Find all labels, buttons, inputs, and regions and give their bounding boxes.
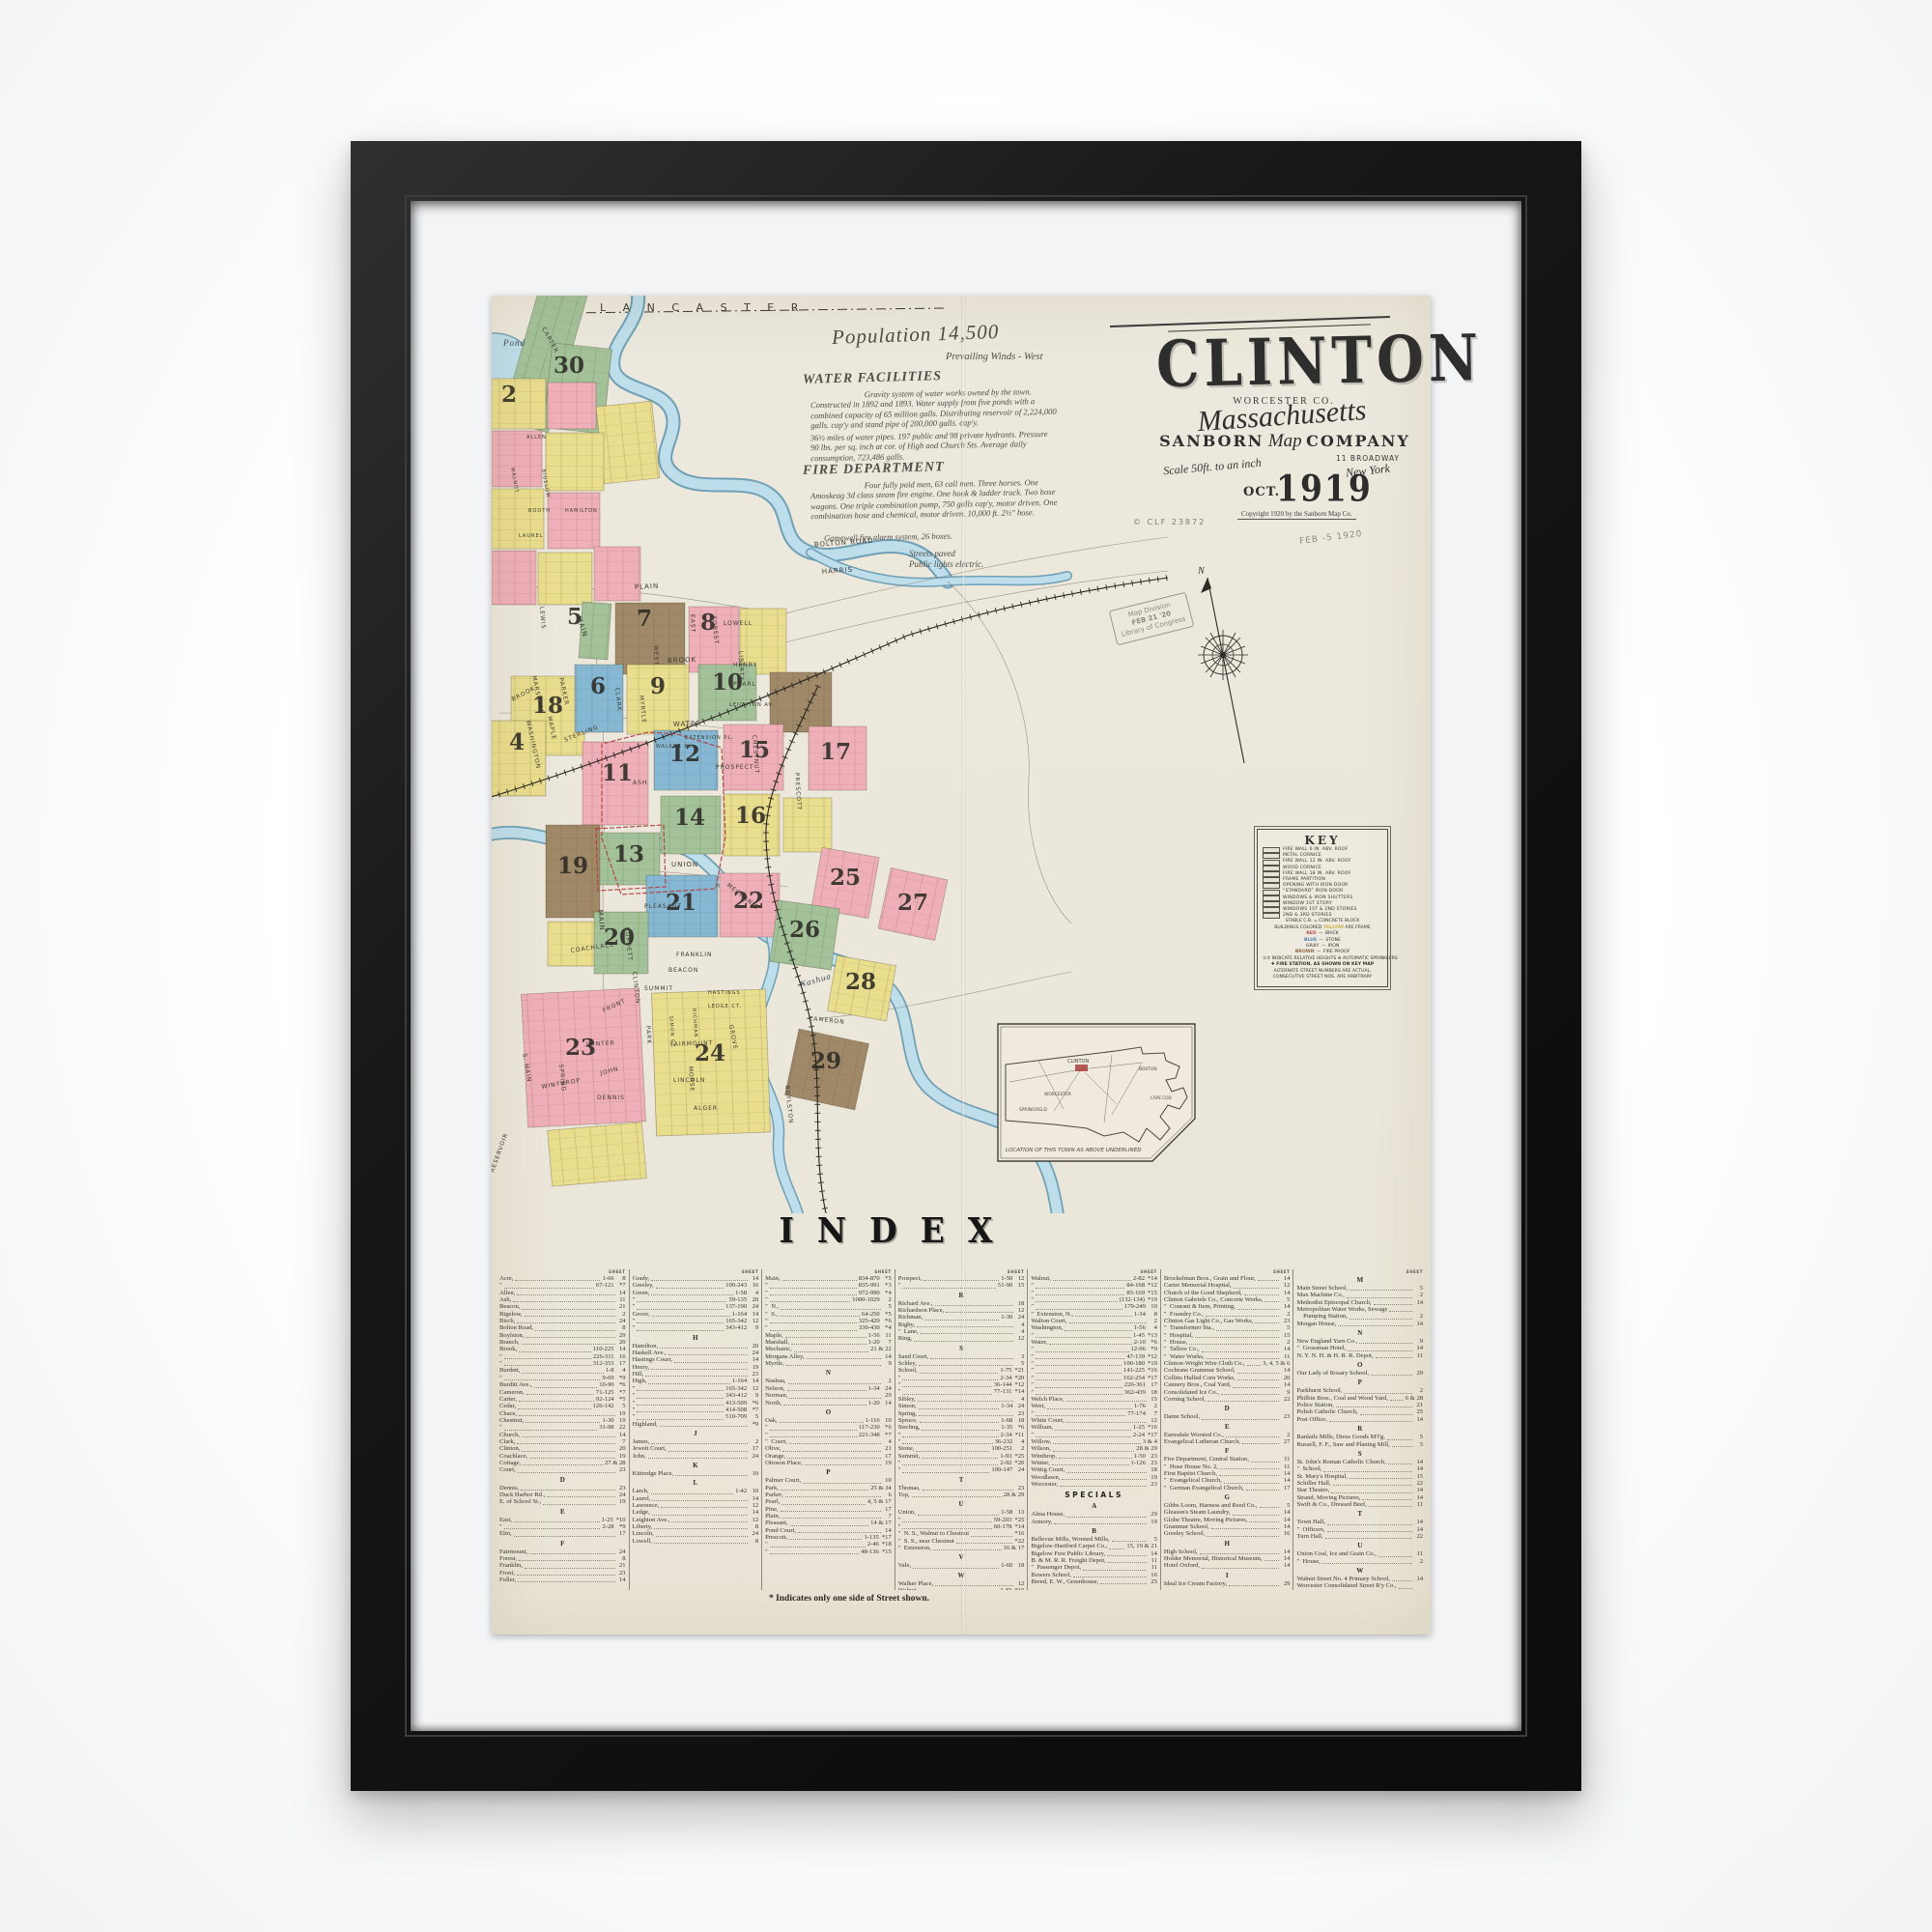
city-block (548, 493, 600, 549)
index-entry: Beacon,21 (499, 1303, 626, 1310)
index-entry: High School,14 (1164, 1548, 1291, 1555)
index-entry: Grove,1-16414 (633, 1311, 759, 1318)
index-entry: Oak,1-11610 (765, 1417, 892, 1424)
key-title: KEY (1263, 834, 1382, 847)
index-entry: ″414-508*7 (633, 1406, 759, 1413)
company-sanborn: SANBORN (1159, 432, 1264, 450)
street-label: LEDGE CT. (708, 1004, 742, 1009)
street-label: ALLEN (526, 435, 547, 440)
index-section-letter: E (1164, 1423, 1291, 1432)
index-entry: Bigelow Free Public Library,14 (1031, 1550, 1157, 1557)
key-symbol (1263, 853, 1280, 859)
index-section-letter: U (1296, 1542, 1423, 1550)
index-entry: Welch Place,15 (1031, 1396, 1157, 1403)
index-entry: Fire Department, Central Station,11 (1164, 1456, 1291, 1463)
index-entry: Myrtle,9 (765, 1360, 892, 1367)
index-entry: Turn Hall,22 (1296, 1533, 1423, 1540)
index-entry: ″835-991*3 (765, 1282, 892, 1289)
index-entry: Wittig Court,18 (1031, 1466, 1157, 1473)
index-entry: ″ Evangelical Church,14 (1164, 1477, 1291, 1484)
index-entry: Greeley School,16 (1164, 1530, 1291, 1537)
inset-town-marker (1075, 1065, 1088, 1071)
index-entry: Plain,7 (765, 1513, 892, 1520)
index-entry: ″510-7095 (633, 1413, 759, 1420)
index-section-letter: N (1296, 1329, 1423, 1338)
index-entry: Town Hall,14 (1296, 1519, 1423, 1525)
city-block (492, 489, 544, 549)
index-entry: Water,2-10*6 (1031, 1339, 1157, 1346)
index-specials-header: SPECIALS (1031, 1491, 1157, 1500)
index-entry: Clinton,20 (499, 1445, 626, 1452)
index-entry: ″1-45*13 (1031, 1332, 1157, 1339)
index-entry: Main Street School,5 (1296, 1285, 1423, 1292)
index-entry: Ledge,14 (633, 1509, 759, 1516)
index-entry: White Court,12 (1031, 1417, 1157, 1424)
index-entry: Gleason's Steam Laundry,14 (1164, 1509, 1291, 1516)
city-block (546, 433, 604, 491)
index-sheet-header: SHEET (499, 1269, 626, 1274)
public-lights-note: Public lights electric. (909, 559, 983, 569)
index-entry: ″ S.,64-250*5 (765, 1311, 892, 1318)
index-section-letter: O (765, 1408, 892, 1417)
index-entry: Grady,14 (633, 1275, 759, 1282)
index-entry: ″179-24910 (1031, 1303, 1157, 1310)
key-symbol (1263, 860, 1280, 866)
index-entry: Laurel,14 (633, 1495, 759, 1502)
index-entry: Parker,6 (765, 1492, 892, 1498)
index-entry: ″ Extension, N.,1-348 (1031, 1311, 1157, 1318)
index-entry: Lawrence,12 (633, 1502, 759, 1509)
index-section-letter: L (1164, 1589, 1291, 1590)
index-entry: Walnut Street No. 4 Primary School,14 (1296, 1576, 1423, 1582)
index-section-letter: F (1164, 1447, 1291, 1456)
index-entry: High,1-16414 (633, 1378, 759, 1384)
index-entry: Woodlawn,19 (1031, 1474, 1157, 1481)
index-entry: Pond Court,14 (765, 1527, 892, 1534)
index-entry: Prescott,1-135*17 (765, 1534, 892, 1541)
index-entry: First Baptist Church,14 (1164, 1470, 1291, 1477)
index-entry: ″413-509*6 (633, 1400, 759, 1406)
index-column: SHEETMMain Street School,5Max Machine Co… (1293, 1269, 1426, 1590)
street-label: PROSPECT (716, 764, 754, 771)
sheet-number-9: 9 (650, 673, 666, 699)
city-block (548, 1122, 647, 1186)
index-entry: Carter,92-124*5 (499, 1396, 626, 1403)
index-entry: Bellevue Mills, Worsted Mills,5 (1031, 1536, 1157, 1543)
index-section-letter: H (633, 1334, 759, 1343)
index-entry: ″77-1747 (1031, 1410, 1157, 1417)
index-entry: ″226-36117 (1031, 1381, 1157, 1388)
index-entry: ″ Foundry Co.,2 (1164, 1311, 1291, 1318)
street-label: HAMILTON (565, 508, 598, 514)
street-label: LAUREL (519, 533, 543, 539)
massachusetts-inset-map: CLINTON WORCESTER SPRINGFIELD BOSTON CAP… (996, 1022, 1197, 1163)
index-entry: Greeley,100-24316 (633, 1282, 759, 1289)
street-label: LOWELL (724, 620, 753, 627)
index-entry: ″362-43918 (1031, 1389, 1157, 1396)
index-entry: Church of the Good Shepherd,14 (1164, 1290, 1291, 1296)
index-entry: ″ Hospital,15 (1164, 1332, 1291, 1339)
index-entry: Polish Catholic Church,25 (1296, 1408, 1423, 1415)
index-entry: Forest,8 (499, 1555, 626, 1562)
index-entry: Strand, Moving Pictures,14 (1296, 1494, 1423, 1501)
index-entry: Parkhurst School,2 (1296, 1387, 1423, 1394)
svg-text:WORCESTER: WORCESTER (1044, 1092, 1071, 1097)
index-entry: ″226-31116 (499, 1353, 626, 1360)
index-entry: ″330-430*4 (765, 1324, 892, 1331)
index-section-letter: N (765, 1369, 892, 1378)
index-entry: Our Lady of Rosary School,29 (1296, 1370, 1423, 1377)
key-symbol (1263, 877, 1280, 883)
index-entry: ″141-225*16 (1031, 1367, 1157, 1374)
key-symbol (1263, 847, 1280, 853)
index-entry: Breed, E. W., Greenhouse,25 (1031, 1578, 1157, 1585)
street-label: ASH (633, 780, 647, 786)
index-entry: ″137-19024 (633, 1303, 759, 1310)
sheet-number-30: 30 (554, 353, 584, 379)
index-section-letter: B (1031, 1527, 1157, 1536)
key-symbol (1263, 883, 1280, 889)
index-entry: Pleasant,14 & 17 (765, 1520, 892, 1526)
title-address1: 11 BROADWAY (1336, 454, 1400, 463)
index-entry: Acre,1-668 (499, 1275, 626, 1282)
index-section-letter: P (1296, 1378, 1423, 1387)
index-entry: ″162-254*17 (1031, 1375, 1157, 1381)
index-entry: Schiller Hall,22 (1296, 1480, 1423, 1487)
index-section-letter: K (633, 1462, 759, 1470)
sheet-number-13: 13 (613, 841, 644, 867)
index-section-letter: I (1164, 1572, 1291, 1580)
index-entry: Dame School,23 (1164, 1413, 1291, 1420)
svg-text:CAPE COD: CAPE COD (1151, 1095, 1172, 1100)
sheet-number-28: 28 (845, 969, 876, 995)
index-entry: Hotel Oxford,14 (1164, 1562, 1291, 1569)
key-symbol (1263, 913, 1280, 919)
index-sheet-header: SHEET (1296, 1269, 1423, 1274)
index-section-letter: T (1296, 1510, 1423, 1519)
index-entry: Clark,7 (499, 1438, 626, 1445)
key-symbol (1263, 866, 1280, 871)
index-entry: ″ German Evangelical Church,17 (1164, 1485, 1291, 1492)
index-entry: St. Mary's Hospital,15 (1296, 1473, 1423, 1480)
index-entry: Hamilton,20 (633, 1343, 759, 1350)
index-entry: William,1-25*16 (1031, 1424, 1157, 1431)
index-entry: Nelson,1-3424 (765, 1385, 892, 1392)
index-entry: ″ Court,4 (765, 1438, 892, 1445)
sheet-number-19: 19 (557, 853, 588, 879)
key-color-legend: BUILDINGS COLORED YELLOW ARE FRAMERED — … (1263, 925, 1382, 956)
key-footer-2: CONSECUTIVE STREET NOS. ARE ARBITRARY (1263, 975, 1382, 980)
index-entry: New England Yarn Co.,9 (1296, 1338, 1423, 1345)
catalog-stamp: © CLF 23872 (1133, 518, 1206, 526)
street-label: CAMERON (809, 1015, 845, 1026)
index-entry: Hastings Court,14 (633, 1356, 759, 1363)
index-entry: Willow,3 & 4 (1031, 1438, 1157, 1445)
index-entry: Walnut,2-82*14 (1031, 1275, 1157, 1282)
index-entry: Norman,29 (765, 1392, 892, 1399)
map-sheet: N L A N C A S T E RCARTERPondALLENWALNUT… (492, 296, 1431, 1634)
index-entry: Nashua,2 (765, 1378, 892, 1384)
index-entry: Mechanic,21 & 22 (765, 1346, 892, 1352)
index-entry: Pumping Station,2 (1296, 1313, 1423, 1320)
index-entry: Burditt Ave.,10-90*6 (499, 1381, 626, 1388)
index-entry: Elm,17 (499, 1530, 626, 1537)
index-section-letter: O (1296, 1361, 1423, 1370)
index-entry: ″ Officers,14 (1296, 1526, 1423, 1533)
index-entry: East,1-25*10 (499, 1517, 626, 1523)
street-label: DENNIS (597, 1094, 625, 1101)
index-entry: Lowell,8 (633, 1538, 759, 1545)
index-entry: Green,1-584 (633, 1290, 759, 1296)
index-entry: Church,14 (499, 1432, 626, 1438)
svg-text:SPRINGFIELD: SPRINGFIELD (1019, 1107, 1048, 1113)
index-entry: E. of School St.,19 (499, 1498, 626, 1505)
index-entry: Court,23 (499, 1466, 626, 1473)
index-entry: Collins Hulled Corn Works,20 (1164, 1375, 1291, 1381)
index-entry: Cannery Bros., Coal Yard,14 (1164, 1381, 1291, 1388)
index-entry: Pearl,4, 5 & 17 (765, 1498, 892, 1505)
index-entry: ″ Passenger Depot,11 (1031, 1564, 1157, 1571)
index-section-letter: L (633, 1479, 759, 1488)
index-entry: John,24 (633, 1453, 759, 1460)
index-entry: ″85-169*15 (1031, 1290, 1157, 1296)
index-entry: ″2-28*9 (499, 1523, 626, 1530)
index-entry: Cottage,27 & 28 (499, 1460, 626, 1466)
sheet-number-10: 10 (712, 669, 743, 696)
index-entry: Chace,19 (499, 1410, 626, 1417)
sheet-number-18: 18 (532, 693, 563, 719)
index-entry: North,1-2014 (765, 1400, 892, 1406)
index-entry: Lincoln,24 (633, 1530, 759, 1537)
street-label: SUMMIT (644, 985, 673, 992)
city-block (492, 379, 546, 429)
index-entry: ″ Tallow Co.,14 (1164, 1346, 1291, 1352)
city-block (596, 401, 660, 484)
sheet-number-8: 8 (700, 610, 716, 636)
company-map-word: Map (1268, 431, 1302, 451)
city-block (538, 553, 592, 605)
street-label: UNION (671, 861, 698, 868)
fire-department-text-1: Four fully paid men, 63 call men. Three … (810, 477, 1061, 522)
index-entry: Gibbs Loom, Harness and Reed Co.,5 (1164, 1502, 1291, 1509)
index-entry: ″312-35317 (499, 1360, 626, 1367)
index-entry: Coachlace,19 (499, 1453, 626, 1460)
index-sheet-header: SHEET (765, 1269, 892, 1274)
index-entry: Grammar School,14 (1164, 1523, 1291, 1530)
index-entry: Consolidated Ice Co.,9 (1164, 1389, 1291, 1396)
index-entry: Brook,110-22514 (499, 1346, 626, 1352)
street-label: Pond (502, 338, 526, 348)
town-label-lancaster: L A N C A S T E R (600, 301, 805, 314)
index-entry: Bigelow-Hartford Carpet Co.,15, 19 & 21 (1031, 1543, 1157, 1549)
index-entry: Clinton-Wright Wire Cloth Co.,3, 4, 5 & … (1164, 1360, 1291, 1367)
street-label: PLAIN (635, 582, 660, 591)
index-entry: Leighton Ave.,12 (633, 1517, 759, 1523)
index-entry: ″165-34212 (633, 1318, 759, 1324)
street-label: LEWIS (538, 607, 547, 630)
index-entry: Carter Memorial Hospital,12 (1164, 1282, 1291, 1289)
index-entry: Cameron,71-125*7 (499, 1389, 626, 1396)
index-entry: ″ House,2 (1164, 1339, 1291, 1346)
index-entry: Wilson,28 & 29 (1031, 1445, 1157, 1452)
index-entry: Post Office,14 (1296, 1416, 1423, 1423)
index-entry: Henry,19 (633, 1364, 759, 1371)
index-entry: Russell, F. F., Saw and Planing Mill,5 (1296, 1441, 1423, 1448)
index-entry: ″ Courant & Item, Printing,14 (1164, 1303, 1291, 1310)
index-entry: ″47-139*12 (1031, 1353, 1157, 1360)
index-entry: ″ Water Works,11 (1164, 1353, 1291, 1360)
street-label: ALGER (694, 1105, 718, 1112)
index-entry: B. & M. R. R. Freight Depot,11 (1031, 1557, 1157, 1564)
index-entry: Philbin Bros., Coal and Wood Yard,6 & 28 (1296, 1395, 1423, 1402)
index-column: SHEETGrady,14Greeley,100-24316Green,1-58… (630, 1269, 763, 1590)
index-entry: ″ N.,5 (765, 1303, 892, 1310)
title-company: SANBORN Map COMPANY (1145, 431, 1425, 452)
index-sheet-header: SHEET (633, 1269, 759, 1274)
index-entry: West,1-762 (1031, 1403, 1157, 1409)
index-entry: ″1000-10292 (765, 1296, 892, 1303)
index-entry: ″12-96*9 (1031, 1346, 1157, 1352)
index-column: SHEETAcre,1-668″67-121*7Allen,14Ash,11Be… (497, 1269, 630, 1590)
index-entry: ″31-9822 (499, 1424, 626, 1431)
city-block (783, 798, 832, 852)
index-section-letter: P (765, 1468, 892, 1477)
street-label: WATER (673, 720, 702, 728)
index-entry: ″ House,2 (1296, 1558, 1423, 1565)
sheet-number-17: 17 (820, 739, 851, 765)
index-entry: James,2 (633, 1438, 759, 1445)
index-entry: ″(132-134)*10 (1031, 1296, 1157, 1303)
index-section-letter: D (499, 1476, 626, 1485)
index-entry: Franklin,21 (499, 1562, 626, 1569)
key-fire-station-line: ✚ FIRE STATION, AS SHOWN ON KEY MAP (1263, 962, 1382, 968)
index-entry: ″ Grossman Hotel,14 (1296, 1345, 1423, 1351)
index-entry: Max Machine Co.,2 (1296, 1292, 1423, 1298)
index-entry: Branch,20 (499, 1339, 626, 1346)
index-entry: Liberty,8 (633, 1523, 759, 1530)
sheet-number-15: 15 (739, 737, 770, 763)
key-symbol (1263, 890, 1280, 895)
street-label: FRANKLIN (676, 952, 713, 958)
inset-town-label: CLINTON (1067, 1059, 1089, 1065)
compass-rose: N (1197, 566, 1248, 763)
index-entry: Duck Harbor Rd.,24 (499, 1492, 626, 1498)
index-entry: ″221-348*7 (765, 1432, 892, 1438)
inset-caption: LOCATION OF THIS TOWN AS ABOVE UNDERLINE… (1006, 1148, 1142, 1153)
sheet-number-22: 22 (733, 888, 764, 914)
index-entry: Alma House,29 (1031, 1511, 1157, 1518)
index-entry: Hill,23 (633, 1371, 759, 1378)
sheet-number-21: 21 (666, 890, 696, 916)
sheet-number-16: 16 (735, 803, 766, 829)
sheet-number-26: 26 (789, 917, 820, 943)
sheet-number-6: 6 (590, 673, 606, 699)
streets-paved-note: Streets paved (909, 549, 955, 558)
sheet-number-4: 4 (509, 729, 525, 755)
index-entry: Washington,1-564 (1031, 1324, 1157, 1331)
index-entry: ″117-230*6 (765, 1424, 892, 1431)
index-entry: Evangelical Lutheran Church,27 (1164, 1438, 1291, 1445)
street-label: LEIGHTON AV. (729, 702, 775, 708)
sheet-number-25: 25 (830, 865, 861, 891)
index-entry: Cochrane Grammar School,14 (1164, 1367, 1291, 1374)
sheet-number-23: 23 (565, 1035, 596, 1061)
index-section-letter: A (1031, 1502, 1157, 1511)
index-entry: Maple,1-5611 (765, 1332, 892, 1339)
sheet-number-5: 5 (567, 604, 582, 630)
index-entry: Main,834-870*5 (765, 1275, 892, 1282)
index-section-letter: D (1164, 1405, 1291, 1413)
index-column: SHEETWalnut,2-82*14″84-168*12″85-169*15″… (1028, 1269, 1161, 1590)
sheet-number-14: 14 (674, 805, 705, 831)
street-label: HENRY (733, 662, 757, 668)
key-symbol (1263, 895, 1280, 901)
street-label: BEACON (668, 967, 698, 974)
street-label: Nashua (798, 971, 833, 989)
index-entry: Clinton Gabriele Co., Concrete Works,5 (1164, 1296, 1291, 1303)
index-entry: Chestnut,1-3019 (499, 1417, 626, 1424)
index-entry: Swift & Co., Dressed Beef,11 (1296, 1501, 1423, 1508)
index-entry: Front,23 (499, 1570, 626, 1577)
sheet-number-12: 12 (669, 741, 700, 767)
index-entry: Ottoson Place,19 (765, 1460, 892, 1466)
index-entry: Ranlails Mills, Dress Goods M'f'g,5 (1296, 1434, 1423, 1440)
index-entry: ″343-4129 (633, 1324, 759, 1331)
index-entry: ″48-136*15 (765, 1548, 892, 1555)
index-entry: Orange,17 (765, 1453, 892, 1460)
compass-north-label: N (1197, 566, 1206, 577)
title-copyright: Copyright 1920 by the Sanborn Map Co. (1237, 510, 1356, 520)
index-entry: Globe Theatre, Moving Pictures,14 (1164, 1517, 1291, 1523)
index-entry: N. Y. N. H. & H. R. R. Depot,11 (1296, 1352, 1423, 1359)
sheet-number-29: 29 (810, 1048, 841, 1074)
index-entry: ″ School,14 (1296, 1465, 1423, 1472)
index-entry: Highland,*9 (633, 1421, 759, 1428)
mat-board: N L A N C A S T E RCARTERPondALLENWALNUT… (411, 201, 1521, 1731)
index-entry: Haskell Ave.,24 (633, 1350, 759, 1356)
index-entry: Worcester,23 (1031, 1481, 1157, 1488)
key-symbol (1263, 871, 1280, 877)
index-entry: ″100-180*10 (1031, 1360, 1157, 1367)
index-entry: Ash,11 (499, 1296, 626, 1303)
street-label: BOOTH (528, 508, 551, 514)
index-entry: Winter,1-12623 (1031, 1460, 1157, 1466)
sheet-fold-crease (961, 296, 966, 1634)
index-entry: Bigelow,2 (499, 1311, 626, 1318)
index-entry: ″325-429*6 (765, 1318, 892, 1324)
index-entry: Fairmount,24 (499, 1548, 626, 1555)
index-entry: Bowers School,16 (1031, 1572, 1157, 1578)
street-label: EAST (689, 614, 696, 634)
sheet-number-20: 20 (604, 924, 635, 951)
street-label: RESERVOIR (492, 1132, 510, 1174)
index-entry: Jewett Court,17 (633, 1445, 759, 1452)
index-entry: Burdett,1-84 (499, 1367, 626, 1374)
key-symbol (1263, 907, 1280, 913)
index-section-letter: R (1296, 1425, 1423, 1434)
index-entry: Pine,17 (765, 1506, 892, 1513)
sheet-number-7: 7 (637, 606, 652, 632)
index-entry: Fuller,14 (499, 1577, 626, 1583)
city-block (492, 551, 536, 605)
index-entry: Morgan House,14 (1296, 1321, 1423, 1327)
index-entry: ″67-121*7 (499, 1282, 626, 1289)
index-entry: Olive,21 (765, 1445, 892, 1452)
city-block (548, 383, 596, 429)
svg-text:BOSTON: BOSTON (1139, 1066, 1157, 1072)
city-block (594, 547, 640, 601)
index-sheet-header: SHEET (1164, 1269, 1291, 1274)
